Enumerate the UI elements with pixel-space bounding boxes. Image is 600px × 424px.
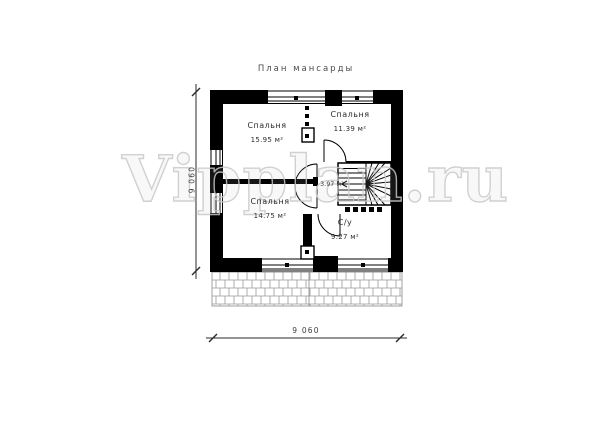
room-area: 11.39 м² xyxy=(330,125,369,133)
room-name: Спальня xyxy=(330,110,369,119)
room-area: 15.95 м² xyxy=(247,136,286,144)
window-top-left xyxy=(268,90,325,104)
room-area: 14.75 м² xyxy=(250,212,289,220)
room-area: 3.97 м² xyxy=(320,181,344,188)
room-label-hall: 3.97 м² xyxy=(320,181,344,188)
window-top-right xyxy=(342,90,373,104)
watermark: Vipplan.ru xyxy=(122,142,509,217)
page-title: План мансарды xyxy=(258,64,354,74)
room-name: С/у xyxy=(331,218,359,227)
room-label-bedroom-bottom-left: Спальня 14.75 м² xyxy=(250,197,289,220)
room-label-bathroom: С/у 9.27 м² xyxy=(331,218,359,241)
room-label-bedroom-top-left: Спальня 15.95 м² xyxy=(247,121,286,144)
room-name: Спальня xyxy=(247,121,286,130)
roof-hatch xyxy=(212,272,402,306)
room-label-bedroom-top-right: Спальня 11.39 м² xyxy=(330,110,369,133)
dimension-bottom-width: 9 060 xyxy=(292,326,319,335)
window-bottom-left xyxy=(262,258,313,272)
floor-plan-page: Vipplan.ru План мансарды Спальня 15.95 м… xyxy=(0,0,600,424)
dimension-left-height: 9 060 xyxy=(188,160,197,200)
room-name: Спальня xyxy=(250,197,289,206)
dimension-line-bottom xyxy=(206,334,407,342)
window-bottom-right xyxy=(338,258,388,272)
room-area: 9.27 м² xyxy=(331,233,359,241)
